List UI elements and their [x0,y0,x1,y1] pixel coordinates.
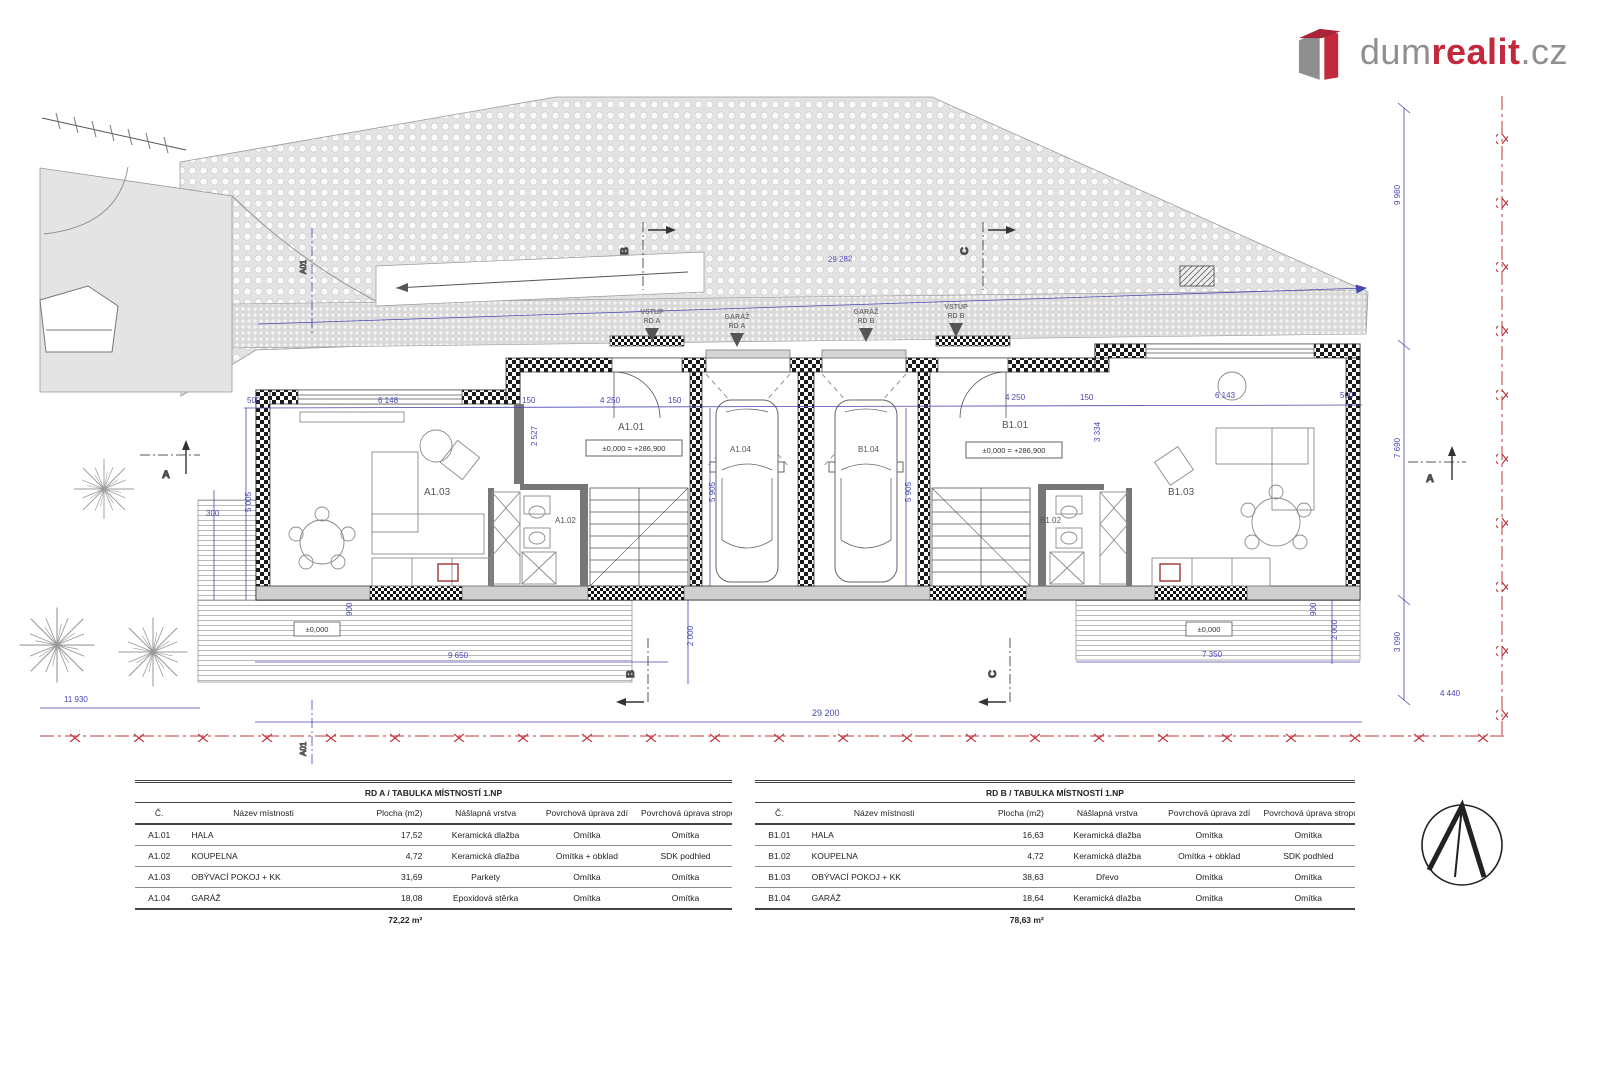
table-cell: 18,64 [959,888,1058,910]
dim: 29 282 [828,254,853,264]
table-cell: 4,72 [338,846,437,867]
table-cell: Omítka [639,888,732,910]
room-label-a101: A1.01 [618,422,645,433]
table-row: B1.02 KOUPELNA 4,72 Keramická dlažba Omí… [755,846,1355,867]
logo-word-dum: dum [1360,31,1432,72]
column-header: Název místnosti [804,803,959,824]
column-header: Povrchová úprava zdí [1157,803,1262,824]
table-cell: Keramická dlažba [1058,846,1157,867]
table-row: A1.04 GARÁŽ 18,08 Epoxidová stěrka Omítk… [135,888,732,910]
table-row: B1.01 HALA 16,63 Keramická dlažba Omítka… [755,824,1355,846]
table-cell: Omítka [639,824,732,846]
table-cell: 31,69 [338,867,437,888]
dim: 5 005 [244,491,253,512]
dim: 29 200 [812,708,840,718]
column-header: Plocha (m2) [959,803,1058,824]
dim: 150 [668,396,682,405]
table-cell: Omítka [1157,888,1262,910]
table-cell: Omítka + obklad [535,846,639,867]
dim: 5 905 [708,481,717,502]
elevation-label-b: ±0,000 = +286,900 [983,446,1046,455]
table-total-value: 72,22 m² [338,909,437,930]
car-garage-a [710,400,784,582]
table-row: A1.03 OBÝVACÍ POKOJ + KK 31,69 Parkety O… [135,867,732,888]
dim: 7 350 [1202,650,1223,659]
table-cell: KOUPELNA [804,846,959,867]
column-header: Povrchová úprava stropu [639,803,732,824]
dumrealit-logo-icon [1296,22,1348,82]
table-cell: 17,52 [338,824,437,846]
table-cell: Omítka [1262,824,1355,846]
entrance-label: VSTUP [640,309,664,316]
dim: 500 [1340,391,1354,400]
tree-icons [19,458,188,687]
dim: 4 250 [600,396,621,405]
table-cell: GARÁŽ [804,888,959,910]
table-cell: Omítka [1157,824,1262,846]
section-c-top: C [959,247,971,255]
section-a01-top: A01 [299,259,308,274]
table-cell: Keramická dlažba [436,846,535,867]
dim: 7 690 [1393,437,1402,458]
dumrealit-logo: dumrealit.cz [1296,22,1568,82]
table-cell: A1.04 [135,888,183,910]
dim: 9 650 [448,651,469,660]
entrance-label: RD B [947,313,964,320]
table-cell: B1.04 [755,888,804,910]
section-c-bottom: C [987,670,999,678]
dim: 6 143 [1215,391,1236,400]
table-row: B1.04 GARÁŽ 18,64 Keramická dlažba Omítk… [755,888,1355,910]
page: { "logo": {"word1": "dum", "word2": "rea… [0,0,1620,1080]
section-b-top: B [619,247,631,255]
table-cell: 38,63 [959,867,1058,888]
table-cell: A1.01 [135,824,183,846]
table-cell: Omítka + obklad [1157,846,1262,867]
table-cell: B1.01 [755,824,804,846]
table-cell: B1.02 [755,846,804,867]
section-b-bottom: B [625,670,637,678]
table-total-row: 72,22 m² [135,909,732,930]
table-a-title: RD A / TABULKA MÍSTNOSTÍ 1.NP [135,780,732,803]
dim: 4 440 [1440,689,1461,698]
table-cell: HALA [804,824,959,846]
column-header: Povrchová úprava zdí [535,803,639,824]
table-total-row: 78,63 m² [755,909,1355,930]
room-label-a103: A1.03 [424,487,451,498]
room-label-b103: B1.03 [1168,487,1195,498]
dim: 3 334 [1093,421,1102,442]
section-a01-bottom: A01 [299,741,308,756]
table-header-row: Č. Název místnosti Plocha (m2) Nášlapná … [755,803,1355,824]
dim: 900 [1309,602,1318,616]
entrance-label: VSTUP [944,304,968,311]
table-cell: Omítka [1262,888,1355,910]
dim: 5 905 [904,481,913,502]
table-cell: Keramická dlažba [1058,824,1157,846]
table-cell: Dřevo [1058,867,1157,888]
elevation-zero-right: ±0,000 [1198,625,1221,634]
table-cell: A1.02 [135,846,183,867]
column-header: Č. [755,803,804,824]
dim: 6 148 [378,396,399,405]
north-arrow-icon [1422,805,1502,885]
table-cell: 4,72 [959,846,1058,867]
table-total-value: 78,63 m² [959,909,1058,930]
table-cell: OBÝVACÍ POKOJ + KK [183,867,337,888]
column-header: Nášlapná vrstva [1058,803,1157,824]
elevation-zero-left: ±0,000 [306,625,329,634]
column-header: Povrchová úprava stropu [1262,803,1355,824]
table-cell: 18,08 [338,888,437,910]
table-header-row: Č. Název místnosti Plocha (m2) Nášlapná … [135,803,732,824]
table-cell: HALA [183,824,337,846]
dim: 3 090 [1393,631,1402,652]
dim: 300 [206,509,220,518]
room-table-a: RD A / TABULKA MÍSTNOSTÍ 1.NP Č. Název m… [135,780,732,930]
room-label-b104: B1.04 [858,445,879,454]
column-header: Plocha (m2) [338,803,437,824]
entrance-label: RD A [729,323,746,330]
dim: 150 [522,396,536,405]
table-cell: Omítka [639,867,732,888]
column-header: Č. [135,803,183,824]
table-cell: Omítka [1262,867,1355,888]
room-label-a104: A1.04 [730,445,751,454]
dim: 2 000 [686,625,695,646]
table-cell: Keramická dlažba [436,824,535,846]
table-cell: KOUPELNA [183,846,337,867]
logo-word-cz: .cz [1520,31,1568,72]
dim: 500 [247,396,261,405]
dim: 4 250 [1005,393,1026,402]
dim: 2 527 [530,425,539,446]
dim: 150 [1080,393,1094,402]
column-header: Název místnosti [183,803,337,824]
table-row: A1.01 HALA 17,52 Keramická dlažba Omítka… [135,824,732,846]
entrance-label: RD B [857,318,874,325]
table-cell: Parkety [436,867,535,888]
logo-text: dumrealit.cz [1360,31,1568,73]
car-garage-b [829,400,903,582]
room-label-b102: B1.02 [1040,516,1061,525]
dim: 11 930 [64,695,88,704]
table-cell: SDK podhled [1262,846,1355,867]
elevation-label-a: ±0,000 = +286,900 [603,444,666,453]
entrance-label: RD A [644,318,661,325]
dim: 900 [345,602,354,616]
dim: 9 980 [1393,184,1402,205]
table-cell: Epoxidová stěrka [436,888,535,910]
table-cell: 16,63 [959,824,1058,846]
entrance-label: GARÁŽ [854,307,880,316]
dim: 2 000 [1330,619,1339,640]
table-row: B1.03 OBÝVACÍ POKOJ + KK 38,63 Dřevo Omí… [755,867,1355,888]
room-table-b: RD B / TABULKA MÍSTNOSTÍ 1.NP Č. Název m… [755,780,1355,930]
table-cell: B1.03 [755,867,804,888]
section-a-right: A [1426,473,1434,485]
table-cell: GARÁŽ [183,888,337,910]
table-cell: A1.03 [135,867,183,888]
table-cell: Keramická dlažba [1058,888,1157,910]
table-cell: Omítka [535,824,639,846]
entrance-label: GARÁŽ [725,312,751,321]
table-cell: Omítka [535,888,639,910]
column-header: Nášlapná vrstva [436,803,535,824]
table-cell: SDK podhled [639,846,732,867]
table-cell: OBÝVACÍ POKOJ + KK [804,867,959,888]
road-area [40,168,232,392]
table-cell: Omítka [1157,867,1262,888]
building [256,336,1360,600]
section-a-left: A [162,469,170,481]
logo-word-realit: realit [1431,31,1520,72]
room-label-b101: B1.01 [1002,420,1029,431]
table-b-title: RD B / TABULKA MÍSTNOSTÍ 1.NP [755,780,1355,803]
table-row: A1.02 KOUPELNA 4,72 Keramická dlažba Omí… [135,846,732,867]
table-cell: Omítka [535,867,639,888]
room-label-a102: A1.02 [555,516,576,525]
